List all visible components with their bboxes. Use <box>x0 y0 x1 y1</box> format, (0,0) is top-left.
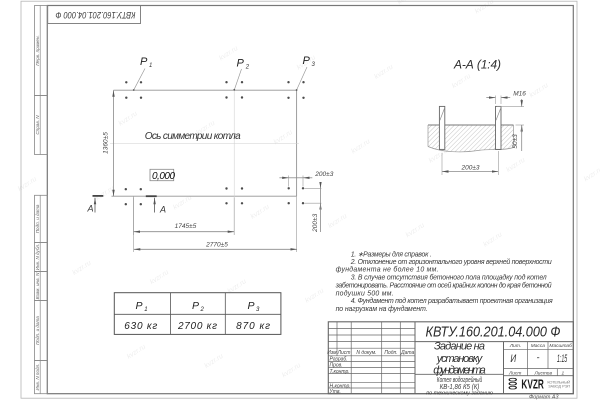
svg-text:kvzr.ru: kvzr.ru <box>149 269 170 286</box>
svg-text:А-А (1:4): А-А (1:4) <box>453 58 501 72</box>
svg-text:Формат А3: Формат А3 <box>529 395 559 400</box>
svg-text:kvzr.ru: kvzr.ru <box>583 166 600 183</box>
svg-text:1360±5: 1360±5 <box>103 132 110 154</box>
svg-text:2. Отклонение от горизонтальн: 2. Отклонение от горизонтального уровня … <box>350 258 552 266</box>
svg-text:kvzr.ru: kvzr.ru <box>451 73 472 90</box>
svg-text:kvzr.ru: kvzr.ru <box>474 0 495 15</box>
svg-text:50±3: 50±3 <box>512 134 519 149</box>
svg-text:1: 1 <box>149 63 152 69</box>
svg-text:1745±5: 1745±5 <box>175 223 197 230</box>
svg-text:Подп.: Подп. <box>384 350 397 356</box>
svg-text:установку: установку <box>436 353 484 365</box>
svg-text:Подп. и дата: Подп. и дата <box>35 316 40 345</box>
svg-text:870 кг: 870 кг <box>236 321 270 332</box>
svg-text:P: P <box>303 55 311 67</box>
svg-text:200±3: 200±3 <box>460 164 479 171</box>
svg-text:kvzr.ru: kvzr.ru <box>126 343 147 360</box>
svg-text:2770±5: 2770±5 <box>205 242 228 249</box>
svg-text:P: P <box>248 300 255 312</box>
svg-text:подушки 500 мм.: подушки 500 мм. <box>336 289 394 297</box>
svg-text:kvzr.ru: kvzr.ru <box>203 353 224 370</box>
svg-text:1: 1 <box>562 371 565 377</box>
svg-text:4. Фундамент под котел разраб: 4. Фундамент под котел разрабатывает про… <box>351 297 553 305</box>
svg-text:P: P <box>136 300 143 312</box>
svg-text:N докум.: N докум. <box>356 350 376 356</box>
svg-text:Справ. N: Справ. N <box>35 115 40 135</box>
svg-text:0,000: 0,000 <box>152 171 175 182</box>
svg-text:Котел водогрейный: Котел водогрейный <box>437 376 482 384</box>
svg-text:Утв.: Утв. <box>330 389 341 395</box>
svg-text:200±3: 200±3 <box>314 171 333 178</box>
svg-text:kvzr.ru: kvzr.ru <box>71 260 92 277</box>
svg-text:Задание на: Задание на <box>434 340 485 352</box>
svg-text:по техническому заданию: по техническому заданию <box>426 390 493 396</box>
svg-text:Дата: Дата <box>400 350 414 356</box>
svg-text:kvzr.ru: kvzr.ru <box>327 213 348 230</box>
svg-text:630 кг: 630 кг <box>124 321 157 332</box>
svg-text:Инв. N дубл.: Инв. N дубл. <box>35 244 40 271</box>
svg-text:3: 3 <box>256 307 260 313</box>
svg-text:kvzr.ru: kvzr.ru <box>304 287 325 304</box>
svg-text:Взам. инв. N: Взам. инв. N <box>35 272 40 299</box>
svg-text:P: P <box>192 300 199 312</box>
svg-text:2700 кг: 2700 кг <box>177 321 217 332</box>
svg-text:kvzr.ru: kvzr.ru <box>172 194 193 211</box>
svg-text:Лист: Лист <box>337 350 351 356</box>
svg-text:1. ∗Размеры для справок .: 1. ∗Размеры для справок . <box>351 251 432 259</box>
svg-text:P: P <box>140 56 148 68</box>
svg-text:1:15: 1:15 <box>557 353 568 365</box>
svg-text:ООО: ООО <box>506 378 520 390</box>
svg-text:А: А <box>86 204 93 214</box>
svg-text:фундамента не более 10 мм.: фундамента не более 10 мм. <box>336 266 439 274</box>
svg-text:фундамента: фундамента <box>433 364 486 376</box>
svg-text:Подп. и дата: Подп. и дата <box>35 204 40 233</box>
svg-text:kvzr.ru: kvzr.ru <box>373 64 394 81</box>
svg-text:1: 1 <box>144 307 147 313</box>
svg-text:А: А <box>159 204 166 214</box>
svg-text:Лист: Лист <box>508 371 521 377</box>
svg-text:М16: М16 <box>513 90 526 97</box>
svg-text:Инв. N подл.: Инв. N подл. <box>35 364 40 391</box>
svg-text:kvzr.ru: kvzr.ru <box>350 138 371 155</box>
svg-text:kvzr.ru: kvzr.ru <box>17 176 38 193</box>
svg-text:kvzr.ru: kvzr.ru <box>482 231 503 248</box>
svg-text:P: P <box>237 57 245 69</box>
svg-text:kvzr.ru: kvzr.ru <box>505 157 526 174</box>
svg-text:Т.контр.: Т.контр. <box>330 369 350 375</box>
svg-text:забетонировать. Расстояние от: забетонировать. Расстояние от осей крайн… <box>335 281 552 289</box>
svg-text:3: 3 <box>312 62 316 68</box>
svg-text:2: 2 <box>245 64 250 70</box>
svg-text:по нагрузкам на фундамент.: по нагрузкам на фундамент. <box>336 305 428 313</box>
svg-text:Масштаб: Масштаб <box>549 343 572 349</box>
svg-text:kvzr.ru: kvzr.ru <box>281 362 302 379</box>
svg-text:KVZR: KVZR <box>521 377 544 392</box>
svg-text:kvzr.ru: kvzr.ru <box>118 110 139 127</box>
svg-text:kvzr.ru: kvzr.ru <box>405 222 426 239</box>
svg-text:И: И <box>510 353 516 365</box>
svg-text:Изм.: Изм. <box>327 350 338 356</box>
svg-text:Пров.: Пров. <box>330 363 343 369</box>
svg-text:ЗАВОД РЭП: ЗАВОД РЭП <box>548 384 570 389</box>
svg-text:КВТУ.160.201.04.000 Ф: КВТУ.160.201.04.000 Ф <box>426 323 561 340</box>
svg-text:2: 2 <box>200 307 205 313</box>
svg-text:kvzr.ru: kvzr.ru <box>94 185 115 202</box>
svg-text:3. В случае отсутствия бетонн: 3. В случае отсутствия бетонного пола пл… <box>351 274 547 282</box>
svg-text:-: - <box>537 353 540 363</box>
svg-text:Лит.: Лит. <box>509 343 521 349</box>
svg-text:kvzr.ru: kvzr.ru <box>528 82 549 99</box>
svg-text:Масса: Масса <box>531 343 546 349</box>
svg-text:КВТУ.160.201.04.000 Ф: КВТУ.160.201.04.000 Ф <box>56 10 136 20</box>
svg-text:kvzr.ru: kvzr.ru <box>250 204 271 221</box>
svg-text:200±3: 200±3 <box>312 213 319 232</box>
svg-text:Перв. примен.: Перв. примен. <box>35 35 40 66</box>
svg-text:Ось симметрии котла: Ось симметрии котла <box>145 131 241 142</box>
